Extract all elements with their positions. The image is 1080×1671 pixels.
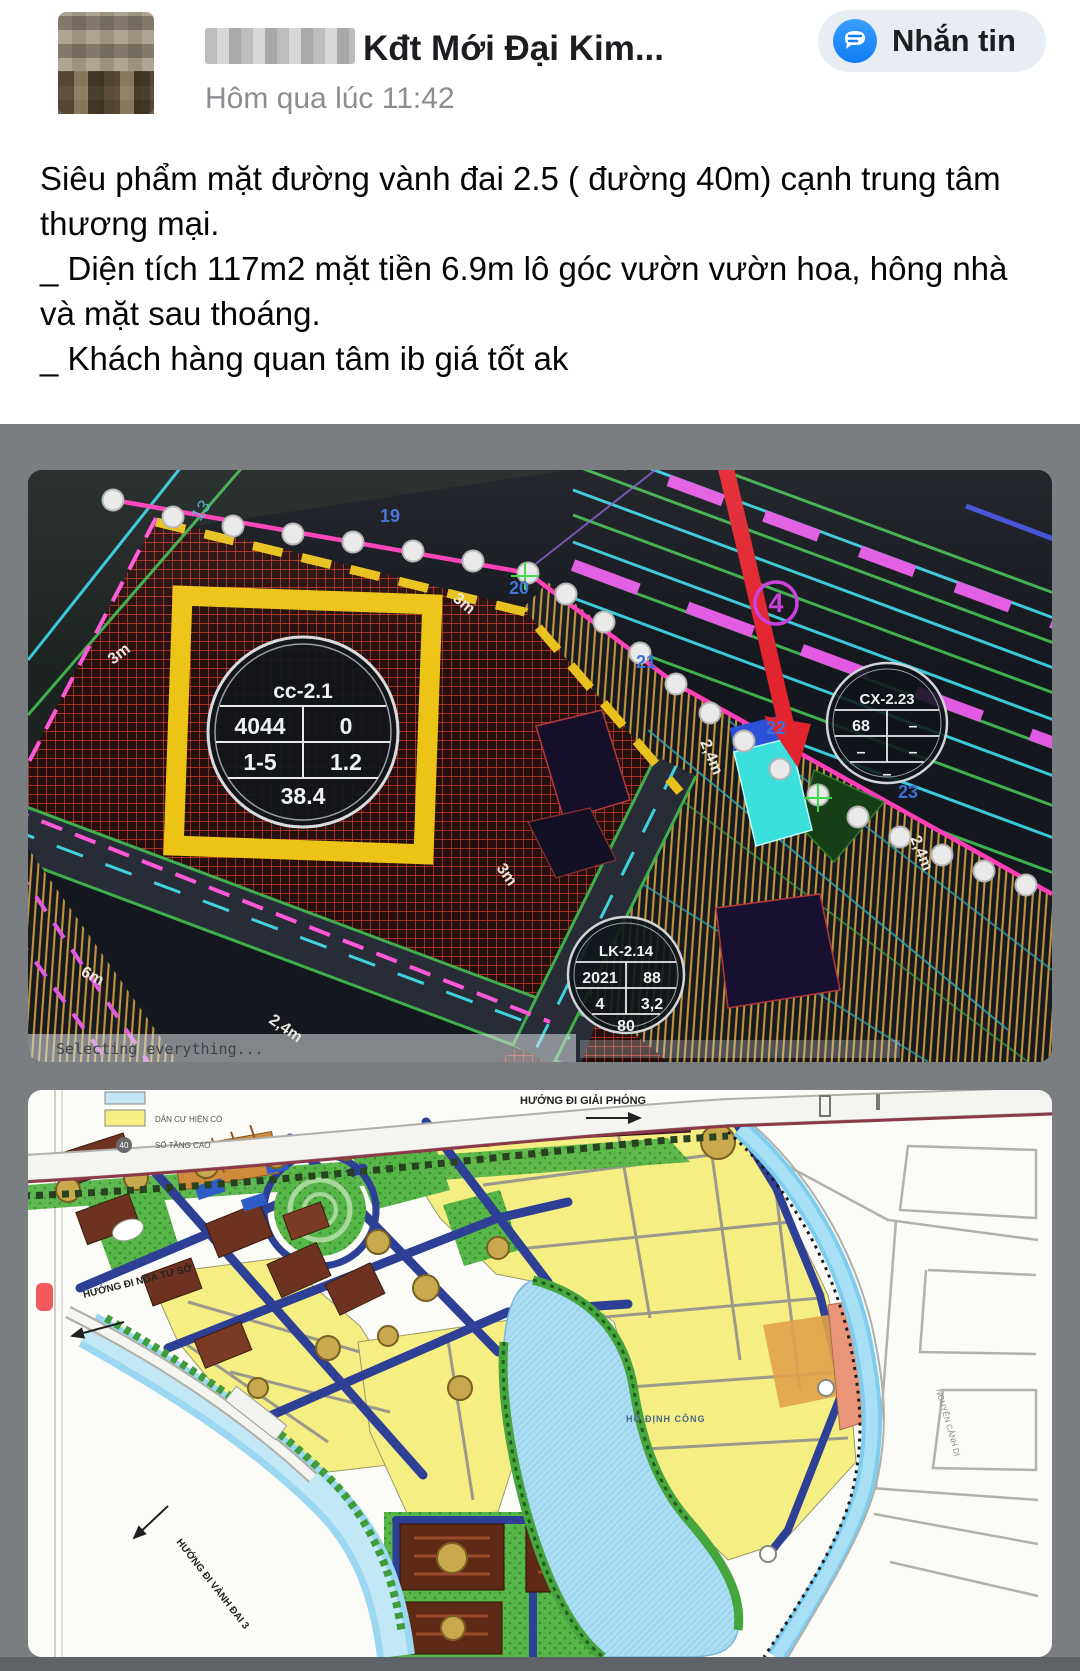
masterplan-drawing: NGUYỄN CẢNH DỊ — [28, 1090, 1052, 1657]
author-name-redacted — [205, 28, 355, 64]
roundabout — [818, 1380, 834, 1396]
message-button[interactable]: Nhắn tin — [818, 10, 1046, 72]
svg-text:88: 88 — [643, 970, 661, 987]
roundabout — [760, 1546, 776, 1562]
svg-text:Selecting everything...: Selecting everything... — [56, 1040, 264, 1058]
post-image-cad[interactable]: cc-2.1 4044 0 1-5 1.2 38.4 CX-2.23 — [28, 470, 1052, 1062]
avatar[interactable] — [58, 12, 154, 114]
building-footprint — [716, 894, 840, 1008]
svg-text:3,2: 3,2 — [641, 996, 663, 1013]
svg-text:1-5: 1-5 — [243, 749, 276, 775]
lake-label: HỒ ĐỊNH CÔNG — [626, 1413, 706, 1424]
svg-text:0: 0 — [340, 713, 353, 739]
parcel-label-cx: CX-2.23 68 – – – – — [827, 663, 947, 783]
svg-text:80: 80 — [617, 1018, 635, 1035]
svg-text:2021: 2021 — [582, 970, 618, 987]
cad-drawing: cc-2.1 4044 0 1-5 1.2 38.4 CX-2.23 — [28, 470, 1052, 1062]
messenger-icon — [832, 18, 878, 64]
svg-text:–: – — [883, 766, 892, 783]
post-paragraph: _ Khách hàng quan tâm ib giá tốt ak — [40, 336, 1044, 381]
next-post-edge — [0, 1657, 1080, 1671]
author-name-visible: Kđt Mới Đại Kim... — [363, 29, 664, 68]
parcel-label-lk: LK-2.14 2021 88 4 3,2 80 — [568, 917, 684, 1035]
legend-floors-label: SỐ TẦNG CAO — [155, 1140, 210, 1150]
svg-text:LK-2.14: LK-2.14 — [599, 943, 654, 960]
svg-text:CX-2.23: CX-2.23 — [859, 691, 914, 708]
post-paragraph: _ Diện tích 117m2 mặt tiền 6.9m lô góc v… — [40, 246, 1044, 336]
photo-viewer-background: cc-2.1 4044 0 1-5 1.2 38.4 CX-2.23 — [0, 424, 1080, 1671]
message-button-label: Nhắn tin — [892, 23, 1016, 59]
svg-text:4044: 4044 — [234, 713, 285, 739]
svg-text:38.4: 38.4 — [281, 783, 326, 809]
post-page: Kđt Mới Đại Kim... Hôm qua lúc 11:42 Nhắ… — [0, 0, 1080, 1671]
svg-text:HƯỚNG ĐI GIẢI PHÓNG: HƯỚNG ĐI GIẢI PHÓNG — [520, 1094, 646, 1107]
svg-text:68: 68 — [852, 718, 870, 735]
post-text: Siêu phẩm mặt đường vành đai 2.5 ( đường… — [40, 156, 1044, 381]
author-name[interactable]: Kđt Mới Đại Kim... — [205, 28, 664, 69]
svg-text:–: – — [909, 718, 918, 735]
svg-text:22: 22 — [766, 718, 786, 738]
svg-text:4: 4 — [596, 996, 605, 1013]
legend-floors-badge: 40 — [120, 1141, 129, 1150]
post-timestamp: Hôm qua lúc 11:42 — [205, 82, 455, 116]
svg-text:–: – — [909, 744, 918, 761]
post-image-masterplan[interactable]: NGUYỄN CẢNH DỊ — [28, 1090, 1052, 1657]
red-scroll-marker — [36, 1283, 53, 1311]
svg-text:cc-2.1: cc-2.1 — [273, 680, 333, 703]
svg-text:23: 23 — [898, 782, 918, 802]
legend-residential-label: DÂN CƯ HIỆN CÓ — [155, 1115, 222, 1124]
post-paragraph: Siêu phẩm mặt đường vành đai 2.5 ( đường… — [40, 156, 1044, 246]
post-header: Kđt Mới Đại Kim... Hôm qua lúc 11:42 Nhắ… — [0, 0, 1080, 150]
svg-text:1.2: 1.2 — [330, 749, 362, 775]
svg-text:–: – — [857, 744, 866, 761]
